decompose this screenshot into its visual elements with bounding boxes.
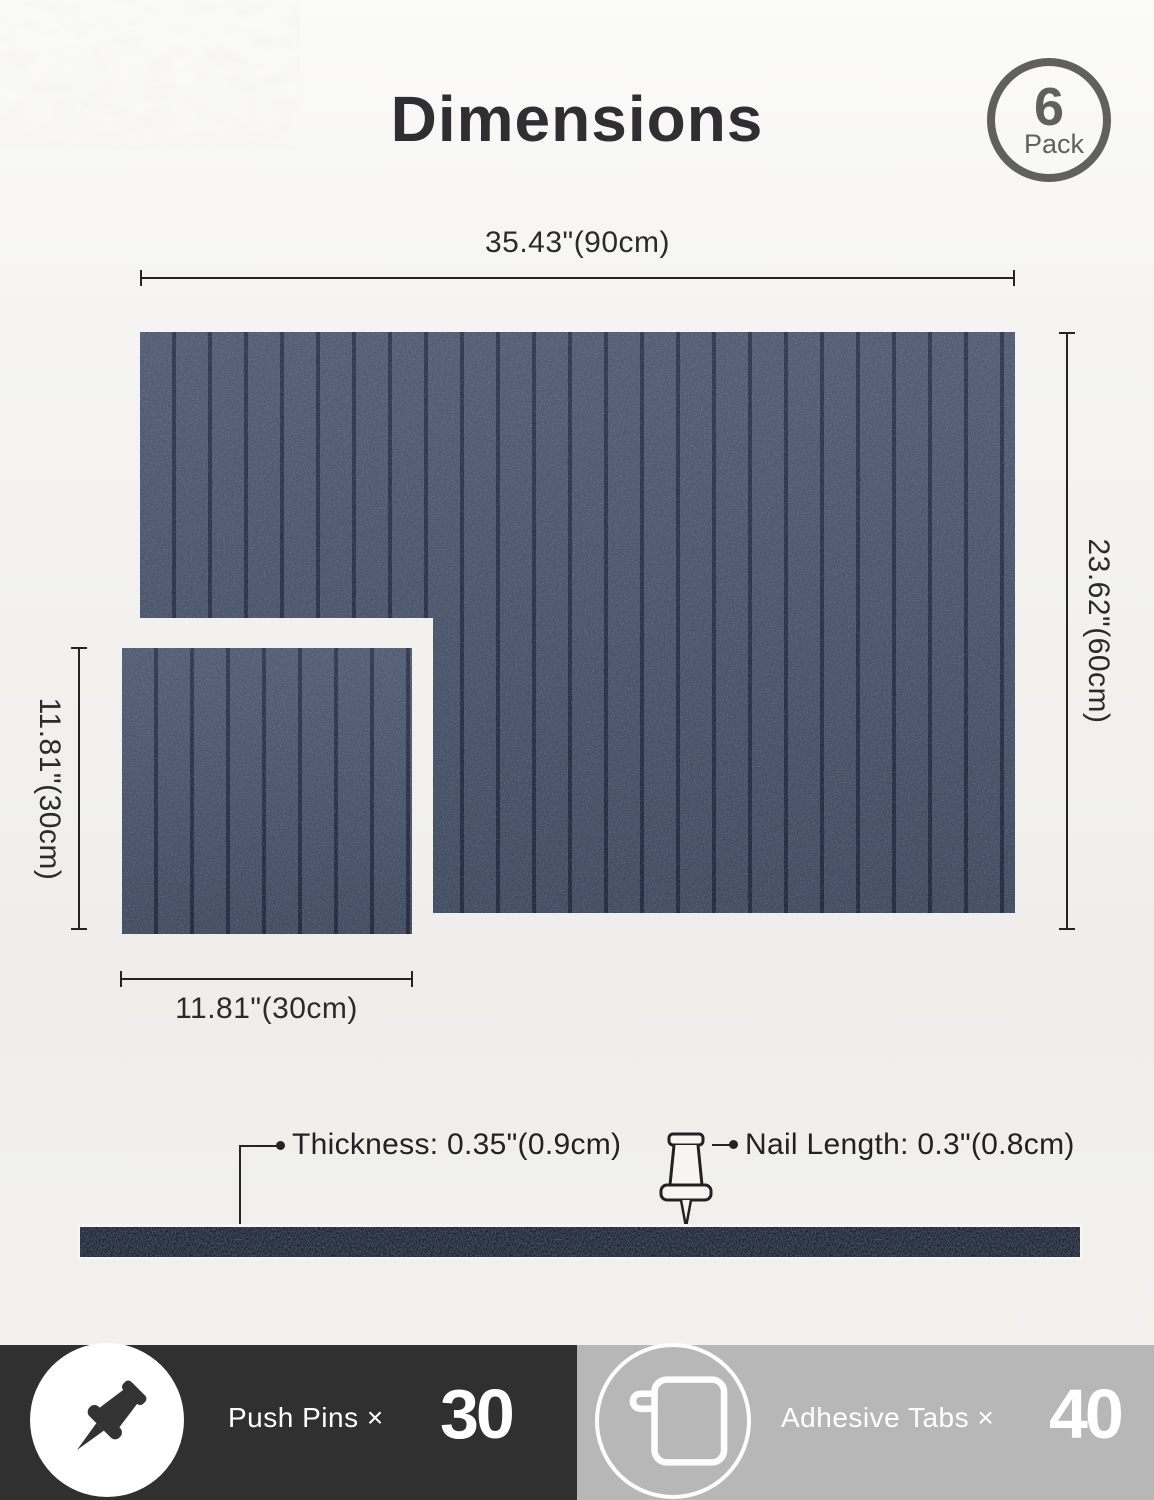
thickness-bar: [80, 1227, 1080, 1257]
small-panel-width-dimension-line: [120, 978, 413, 980]
dimension-tick: [411, 971, 413, 987]
adhesive-tab-circle: [595, 1343, 751, 1499]
dimension-tick: [1059, 332, 1075, 334]
footer-adhesive-tabs-section: Adhesive Tabs × 40: [577, 1345, 1154, 1500]
large-panel-width-dimension-line: [140, 277, 1015, 279]
dimension-tick: [71, 647, 87, 649]
pack-label: Pack: [1014, 131, 1084, 158]
felt-texture-bar: [80, 1227, 1080, 1257]
pack-badge: 6 Pack: [987, 58, 1111, 182]
small-panel-height-dimension-line: [78, 647, 80, 930]
thickness-label: Thickness: 0.35"(0.9cm): [292, 1128, 621, 1162]
dimension-tick: [120, 971, 122, 987]
dimension-tick: [1059, 928, 1075, 930]
large-panel-height-label: 23.62"(60cm): [1081, 538, 1115, 723]
adhesive-tab-icon: [626, 1374, 730, 1468]
push-pins-count: 30: [440, 1379, 512, 1449]
product-dimensions-infographic: Dimensions 6 Pack 35.43"(90cm): [0, 0, 1154, 1500]
nail-length-label: Nail Length: 0.3"(0.8cm): [745, 1128, 1075, 1162]
large-panel-height-dimension-line: [1066, 332, 1068, 930]
thickness-leader-dot: [276, 1141, 285, 1150]
adhesive-tabs-count: 40: [1049, 1379, 1121, 1449]
small-felt-panel: [122, 648, 412, 934]
small-panel-width-label: 11.81"(30cm): [120, 992, 413, 1026]
dimension-tick: [140, 270, 142, 286]
felt-texture-small: [122, 648, 412, 934]
thickness-leader-line: [239, 1145, 279, 1147]
nail-leader-dot: [729, 1140, 738, 1149]
push-pin-circle: [30, 1343, 184, 1497]
dimension-tick: [71, 928, 87, 930]
page-title: Dimensions: [0, 82, 1154, 156]
thickness-leader-line: [239, 1146, 241, 1230]
push-pins-label: Push Pins ×: [228, 1402, 384, 1434]
push-pin-outline-icon: [658, 1132, 714, 1230]
small-panel-height-label: 11.81"(30cm): [32, 698, 66, 881]
dimension-tick: [1013, 270, 1015, 286]
adhesive-tabs-label: Adhesive Tabs ×: [781, 1402, 994, 1434]
pack-count: 6: [1034, 82, 1064, 133]
footer: Push Pins × 30 Adhesive Tabs × 40: [0, 1345, 1154, 1500]
large-panel-width-label: 35.43"(90cm): [140, 226, 1015, 260]
footer-push-pins-section: Push Pins × 30: [0, 1345, 577, 1500]
push-pin-icon: [42, 1355, 172, 1485]
